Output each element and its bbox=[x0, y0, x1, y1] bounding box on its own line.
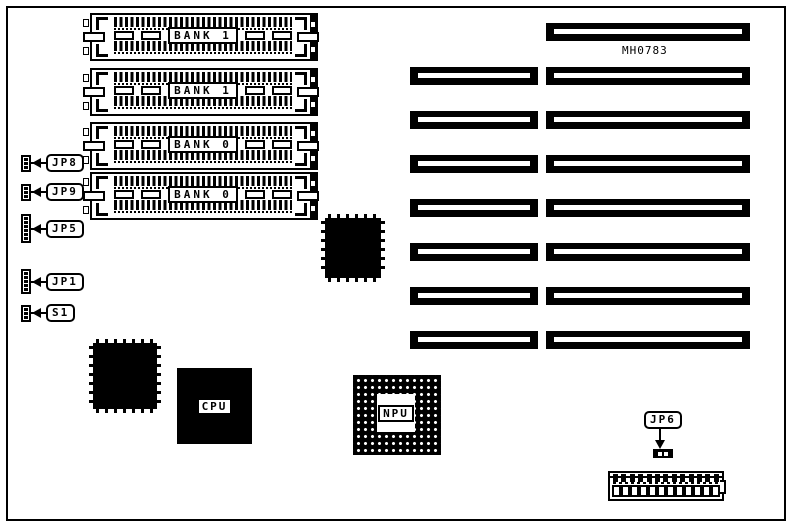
simm-clip-left bbox=[92, 70, 112, 114]
expansion-slot bbox=[410, 331, 538, 349]
pointer-line bbox=[31, 228, 46, 230]
jumper-pin-header bbox=[21, 184, 31, 201]
npu-label: NPU bbox=[378, 405, 414, 422]
jumper-label: JP5 bbox=[46, 220, 84, 238]
simm-bar bbox=[141, 190, 161, 199]
simm-clip-left bbox=[92, 124, 112, 168]
simm-bar bbox=[114, 31, 134, 40]
expansion-slot bbox=[546, 331, 750, 349]
pin-teeth bbox=[114, 126, 292, 136]
jumper-jp9: JP9 bbox=[21, 183, 84, 201]
connector-pin-row bbox=[610, 473, 722, 482]
expansion-slot bbox=[546, 111, 750, 129]
arrow-down-icon bbox=[655, 440, 665, 449]
simm-bar bbox=[141, 140, 161, 149]
expansion-slot bbox=[410, 287, 538, 305]
simm-bar bbox=[114, 86, 134, 95]
simm-bar bbox=[141, 31, 161, 40]
connector-cell-row bbox=[610, 484, 722, 497]
jumper-label: JP6 bbox=[644, 411, 682, 429]
cpu-chip: CPU bbox=[177, 368, 252, 444]
arrow-left-icon bbox=[32, 158, 41, 168]
switch-s1: S1 bbox=[21, 304, 75, 322]
simm-clip-left bbox=[92, 174, 112, 218]
jp6-jumper-block bbox=[653, 449, 673, 458]
simm-clip-right bbox=[296, 174, 316, 218]
jumper-jp8: JP8 bbox=[21, 154, 84, 172]
board-id-label: MH0783 bbox=[622, 44, 668, 57]
arrow-left-icon bbox=[32, 187, 41, 197]
expansion-slot bbox=[410, 111, 538, 129]
simm-bar bbox=[245, 86, 265, 95]
jumper-pin-header bbox=[21, 269, 31, 294]
memory-bank-slot: BANK 1 bbox=[90, 68, 318, 116]
expansion-slot bbox=[410, 67, 538, 85]
npu-chip: NPU bbox=[377, 394, 415, 432]
expansion-slot bbox=[410, 243, 538, 261]
jumper-pin-header bbox=[21, 155, 31, 172]
jumper-pin-header bbox=[21, 214, 31, 243]
edge-connector bbox=[608, 471, 724, 501]
memory-bank-slot: BANK 0 bbox=[90, 172, 318, 220]
pin-teeth bbox=[114, 72, 292, 82]
bank-label: BANK 0 bbox=[168, 136, 238, 153]
jumper-label: JP1 bbox=[46, 273, 84, 291]
simm-bar bbox=[141, 86, 161, 95]
simm-bar bbox=[272, 86, 292, 95]
arrow-left-icon bbox=[32, 277, 41, 287]
expansion-slot bbox=[546, 23, 750, 41]
simm-bar bbox=[272, 31, 292, 40]
pointer-line bbox=[31, 312, 46, 314]
simm-bar bbox=[245, 31, 265, 40]
simm-bar bbox=[114, 140, 134, 149]
expansion-slot bbox=[546, 287, 750, 305]
expansion-slot bbox=[546, 67, 750, 85]
motherboard-diagram: BANK 1 BANK 1 bbox=[0, 0, 791, 527]
jumper-pin-header bbox=[21, 305, 31, 322]
simm-clip-right bbox=[296, 15, 316, 59]
bank-label: BANK 0 bbox=[168, 186, 238, 203]
expansion-slot bbox=[546, 243, 750, 261]
jumper-jp5: JP5 bbox=[21, 214, 84, 243]
bank-label: BANK 1 bbox=[168, 82, 238, 99]
expansion-slot bbox=[546, 155, 750, 173]
pointer-line bbox=[31, 162, 46, 164]
pointer-line bbox=[31, 191, 46, 193]
connector-notch bbox=[720, 480, 726, 494]
simm-clip-right bbox=[296, 70, 316, 114]
qfp-chip-center bbox=[325, 218, 381, 278]
jumper-label: JP9 bbox=[46, 183, 84, 201]
memory-bank-slot: BANK 0 bbox=[90, 122, 318, 170]
jumper-jp1: JP1 bbox=[21, 269, 84, 294]
expansion-slot bbox=[546, 199, 750, 217]
pin-teeth bbox=[114, 176, 292, 186]
simm-clip-right bbox=[296, 124, 316, 168]
memory-bank-slot: BANK 1 bbox=[90, 13, 318, 61]
qfp-chip-left bbox=[93, 343, 157, 409]
simm-bar bbox=[245, 140, 265, 149]
arrow-left-icon bbox=[32, 308, 41, 318]
pointer-line bbox=[31, 281, 46, 283]
pin-teeth bbox=[114, 17, 292, 27]
bank-label: BANK 1 bbox=[168, 27, 238, 44]
expansion-slot bbox=[410, 155, 538, 173]
simm-bar bbox=[272, 140, 292, 149]
simm-clip-left bbox=[92, 15, 112, 59]
expansion-slot bbox=[410, 199, 538, 217]
cpu-label: CPU bbox=[197, 398, 233, 415]
simm-bar bbox=[272, 190, 292, 199]
jumper-label: JP8 bbox=[46, 154, 84, 172]
jumper-label: S1 bbox=[46, 304, 75, 322]
npu-socket: NPU bbox=[353, 375, 441, 455]
simm-bar bbox=[245, 190, 265, 199]
arrow-left-icon bbox=[32, 224, 41, 234]
simm-bar bbox=[114, 190, 134, 199]
